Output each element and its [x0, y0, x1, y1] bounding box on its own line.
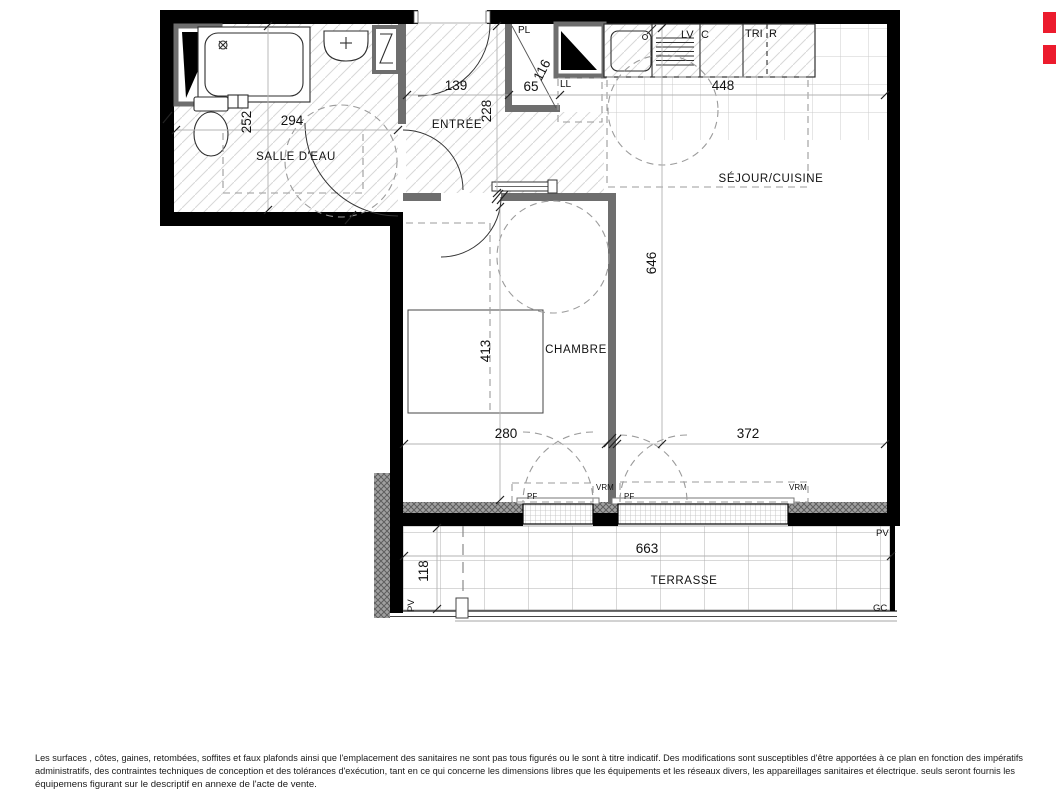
tag-lave-linge: LL	[560, 79, 572, 90]
tag-vrm-sejour: VRM	[789, 483, 807, 492]
tag-tri: TRI	[745, 28, 763, 40]
footer-line-2: administratifs, des contraintes techniqu…	[35, 766, 1015, 777]
dim-663: 663	[636, 541, 659, 556]
floor-plan-svg: 294 252 139 228 116 65 448 646 413 280 3…	[0, 0, 1056, 800]
label-sejour-cuisine: SÉJOUR/CUISINE	[719, 172, 824, 185]
dim-65: 65	[523, 79, 538, 94]
floor-plan-page: 294 252 139 228 116 65 448 646 413 280 3…	[0, 0, 1056, 800]
chambre-door-swing	[441, 197, 501, 257]
window-sejour	[618, 504, 788, 524]
red-square-top	[1043, 12, 1056, 33]
tag-placard: PL	[518, 25, 531, 36]
dim-280: 280	[495, 426, 518, 441]
footer-disclaimer: Les surfaces , côtes, gaines, retombées,…	[35, 753, 1023, 790]
tag-pf-chambre: PF	[527, 492, 537, 501]
footer-line-1: Les surfaces , côtes, gaines, retombées,…	[35, 753, 1023, 764]
tag-refrigerateur: R	[769, 28, 777, 40]
shower-tray	[198, 27, 310, 102]
label-entree: ENTRÉE	[432, 118, 482, 131]
tag-pv-right: PV	[876, 528, 889, 539]
dim-252: 252	[239, 111, 254, 134]
dim-118: 118	[416, 560, 431, 582]
dim-646: 646	[644, 252, 659, 275]
tag-vrm-chambre: VRM	[596, 483, 614, 492]
window-chambre	[523, 504, 593, 524]
terrace-drain	[456, 598, 468, 618]
dim-294: 294	[281, 113, 304, 128]
tag-gc: GC	[873, 603, 887, 614]
tag-pf-sejour: PF	[624, 492, 634, 501]
label-salle-deau: SALLE D'EAU	[256, 151, 336, 163]
dim-413: 413	[478, 340, 493, 363]
dim-139: 139	[445, 78, 468, 93]
red-square-bottom	[1043, 45, 1056, 64]
tag-cuisson: C	[701, 29, 709, 41]
dim-448: 448	[712, 78, 735, 93]
kitchen-counter	[604, 24, 815, 77]
red-marks	[1043, 12, 1056, 64]
label-chambre: CHAMBRE	[545, 344, 607, 356]
label-terrasse: TERRASSE	[651, 575, 718, 587]
tag-pv-left: PV	[406, 599, 417, 612]
dim-372: 372	[737, 426, 760, 441]
tag-lave-vaisselle: LV	[681, 29, 694, 41]
bed	[408, 310, 543, 413]
footer-line-3: équipemens figurant sur le descriptif en…	[35, 779, 317, 790]
